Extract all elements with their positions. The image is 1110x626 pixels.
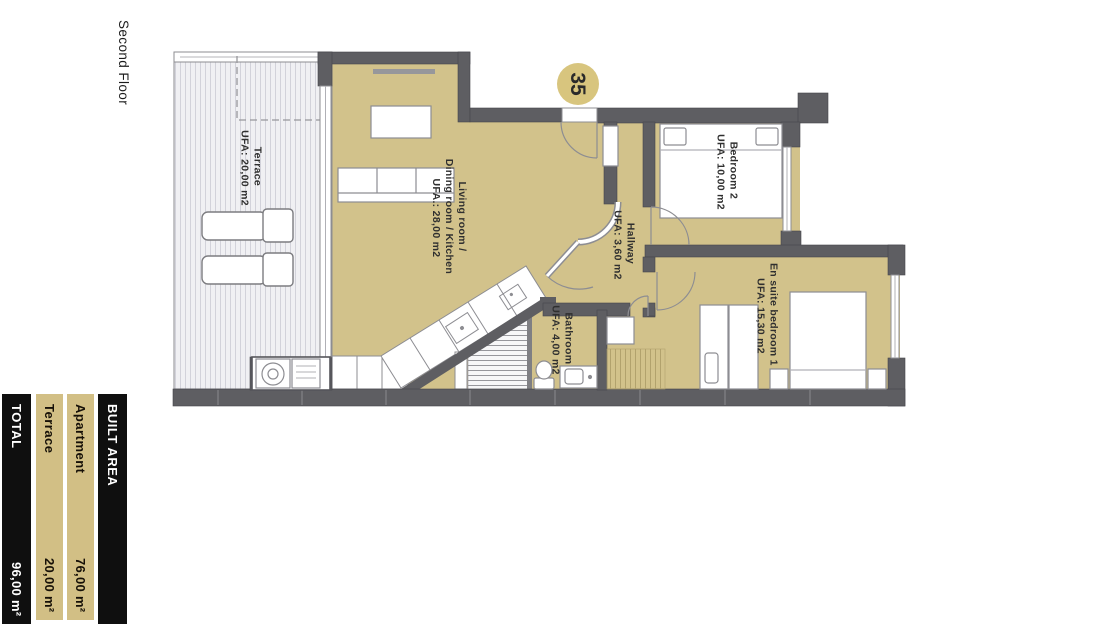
svg-text:35: 35: [566, 72, 589, 96]
laundry-nook: [252, 357, 330, 390]
legend-terrace-value: 20,00 m²: [42, 558, 57, 612]
tv-unit: [373, 69, 435, 74]
legend-built-area-label: BUILT AREA: [105, 404, 120, 486]
wardrobe: [700, 305, 758, 389]
floor-plan: Terrace UFA: 20,00 m2 Living room / Dini…: [0, 0, 1110, 626]
legend-apartment-bar: Apartment 76,00 m²: [67, 394, 94, 620]
coffee-table: [371, 106, 431, 138]
legend-terrace-label: Terrace: [42, 404, 57, 454]
legend-total-value: 96,00 m²: [9, 562, 24, 616]
floorplan-page: Second Floor: [0, 0, 1110, 626]
shower-slats: [607, 349, 665, 389]
label-bedroom2: Bedroom 2 UFA: 10,00 m2: [715, 134, 740, 210]
wall-thin: [527, 315, 532, 389]
label-bathroom: Bathroom UFA: 4,00 m2: [550, 305, 575, 375]
sun-lounger: [202, 209, 293, 242]
sun-lounger: [202, 253, 293, 286]
unit-badge: 35: [557, 63, 599, 105]
room-terrace: [174, 52, 332, 389]
bathroom-sink-icon: [560, 366, 597, 388]
washbasin-unit: [607, 317, 634, 344]
label-ensuite: En suite bedroom 1 UFA: 15,30 m2: [755, 263, 780, 369]
legend-terrace-bar: Terrace 20,00 m²: [36, 394, 63, 620]
legend-built-area-bar: BUILT AREA: [98, 394, 127, 624]
legend-apartment-label: Apartment: [73, 404, 88, 474]
legend-apartment-value: 76,00 m²: [73, 558, 88, 612]
legend-total-label: TOTAL: [9, 404, 24, 449]
hall-closet: [603, 126, 618, 166]
area-legend: TOTAL 96,00 m² Terrace 20,00 m² Apartmen…: [0, 394, 134, 626]
legend-total-bar: TOTAL 96,00 m²: [2, 394, 31, 624]
entrance-door-frame: [562, 108, 597, 122]
